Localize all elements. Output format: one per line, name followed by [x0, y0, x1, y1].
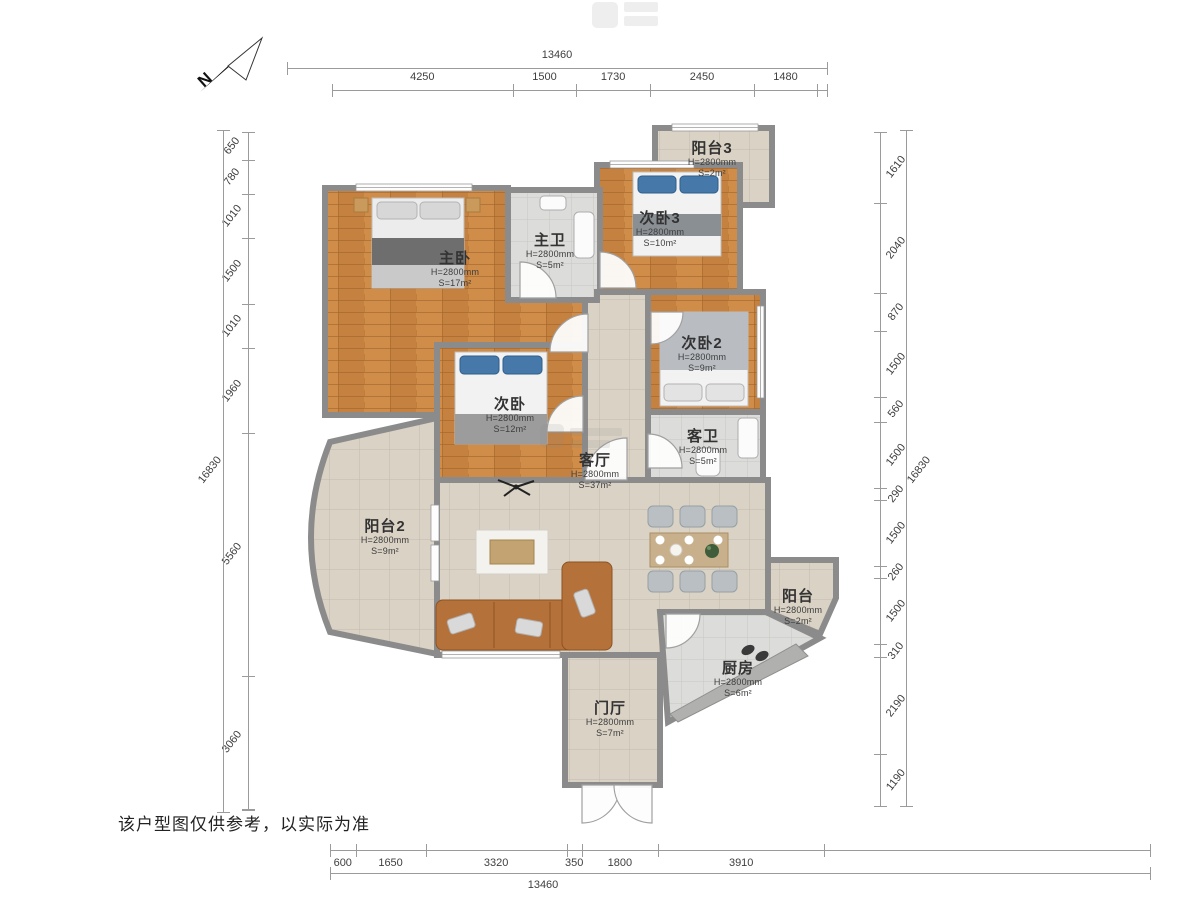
door-entry-right — [614, 785, 652, 823]
floorplan-svg: N — [0, 0, 1200, 900]
coffee-table — [476, 530, 548, 574]
dim-tick — [426, 844, 427, 857]
dim-line — [330, 850, 1150, 851]
disclaimer-text: 该户型图仅供参考，以实际为准 — [118, 810, 370, 835]
dim-label: 600 — [334, 857, 352, 869]
dim-tick — [576, 84, 577, 97]
dim-tick — [874, 644, 887, 645]
dim-tick — [567, 844, 568, 857]
dim-tick — [900, 806, 913, 807]
dim-tick — [242, 348, 255, 349]
dim-label: 350 — [565, 857, 583, 869]
dim-tick — [658, 844, 659, 857]
dim-tick — [356, 844, 357, 857]
dim-line — [330, 873, 1150, 874]
dim-line — [287, 68, 827, 69]
dim-tick — [242, 304, 255, 305]
svg-text:N: N — [194, 69, 216, 91]
dim-line — [332, 90, 827, 91]
dim-tick — [330, 867, 331, 880]
dim-label: 13460 — [542, 49, 573, 61]
dim-tick — [900, 130, 913, 131]
dim-label: 1480 — [773, 71, 797, 83]
bed-master — [354, 198, 480, 288]
dim-tick — [1150, 867, 1151, 880]
dim-tick — [874, 754, 887, 755]
dim-tick — [1150, 844, 1151, 857]
dim-tick — [824, 844, 825, 857]
dim-tick — [874, 578, 887, 579]
bed-bedroom3 — [633, 172, 721, 256]
dim-label: 3320 — [484, 857, 508, 869]
dining-set — [648, 506, 737, 592]
dim-tick — [874, 397, 887, 398]
dim-tick — [874, 488, 887, 489]
dim-tick — [817, 84, 818, 97]
dim-label: 3910 — [729, 857, 753, 869]
dim-tick — [827, 84, 828, 97]
dim-label: 1730 — [601, 71, 625, 83]
dim-tick — [874, 657, 887, 658]
room-balcony2 — [311, 418, 437, 654]
dim-tick — [650, 84, 651, 97]
dim-tick — [874, 806, 887, 807]
dim-tick — [874, 203, 887, 204]
dim-tick — [754, 84, 755, 97]
dim-tick — [874, 293, 887, 294]
dim-line — [248, 132, 249, 810]
dim-tick — [242, 132, 255, 133]
dim-tick — [330, 844, 331, 857]
dim-tick — [242, 160, 255, 161]
dim-tick — [874, 331, 887, 332]
dim-tick — [287, 62, 288, 75]
dim-tick — [332, 84, 333, 97]
dim-label: 1800 — [608, 857, 632, 869]
dim-line — [223, 130, 224, 812]
dim-tick — [827, 62, 828, 75]
dim-label: 2450 — [690, 71, 714, 83]
dim-line — [906, 130, 907, 806]
dim-tick — [874, 566, 887, 567]
floorplan-canvas: N 阳台3H=2800mmS=2m² 次卧3H=2800mmS=10m² 主卫H… — [0, 0, 1200, 900]
bed-bedroom-mid — [455, 352, 547, 444]
dim-tick — [513, 84, 514, 97]
dim-tick — [242, 194, 255, 195]
north-arrow-icon: N — [194, 38, 262, 92]
dim-tick — [874, 422, 887, 423]
dim-tick — [242, 676, 255, 677]
dim-line — [880, 132, 881, 806]
dim-label: 13460 — [528, 879, 559, 891]
dim-label: 1500 — [532, 71, 556, 83]
dim-tick — [242, 433, 255, 434]
dim-tick — [217, 130, 230, 131]
dim-tick — [582, 844, 583, 857]
dim-tick — [874, 132, 887, 133]
room-foyer — [565, 655, 660, 785]
dim-tick — [874, 500, 887, 501]
dim-label: 1650 — [378, 857, 402, 869]
dim-label: 4250 — [410, 71, 434, 83]
dim-tick — [242, 238, 255, 239]
